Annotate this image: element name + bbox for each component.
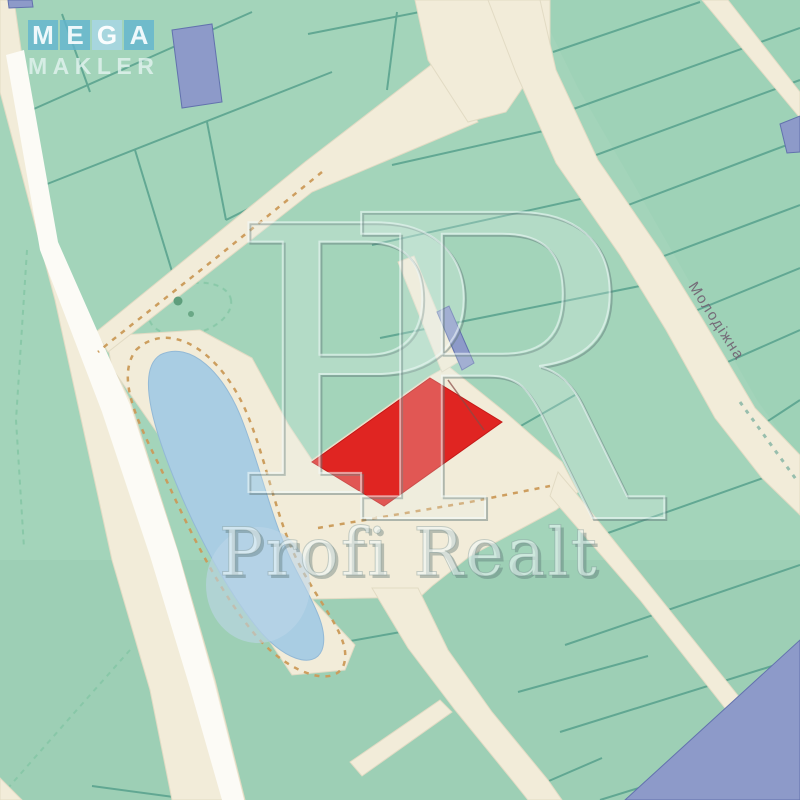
map-drawing: Молодіжна P P R R Profi Realt Profi Real… (0, 0, 800, 800)
logo-letter-a: A (124, 20, 154, 50)
logo-letter-m: M (28, 20, 58, 50)
watermark-brand-text: Profi Realt Profi Realt (219, 514, 602, 594)
logo-word-makler: MAKLER (28, 53, 208, 80)
logo-letter-g: G (92, 20, 122, 50)
map-canvas[interactable]: Молодіжна P P R R Profi Realt Profi Real… (0, 0, 800, 800)
agency-logo: M E G A MAKLER (28, 20, 208, 80)
brand-text: Profi Realt (219, 514, 599, 591)
building-top-edge (8, 0, 33, 8)
agency-logo-squares: M E G A (28, 20, 208, 50)
logo-letter-e: E (60, 20, 90, 50)
